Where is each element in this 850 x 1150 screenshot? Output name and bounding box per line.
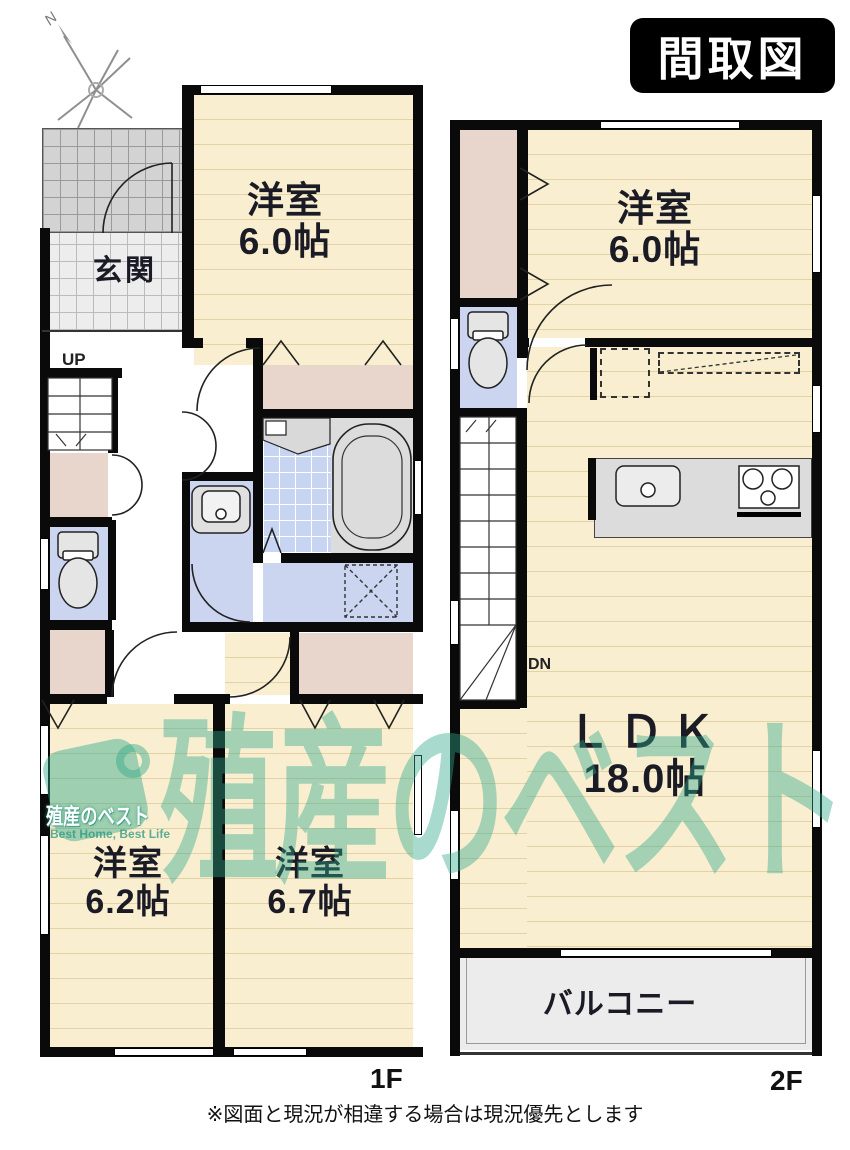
room-size: 6.0帖 [580, 229, 730, 270]
floorplan-title-badge: 間取図 [630, 18, 835, 93]
compass-north-label: N [41, 9, 61, 29]
room-label-6-7: 洋室 6.7帖 [235, 845, 385, 921]
room-name: 洋室 [580, 188, 730, 229]
disclaimer-text: ※図面と現況が相違する場合は現況優先とします [0, 1098, 850, 1127]
room-name: 洋室 [235, 845, 385, 883]
room-size: 6.7帖 [235, 883, 385, 921]
toilet-icon-1f [58, 532, 98, 608]
floor-2-tag: 2F [770, 1065, 803, 1097]
balcony-label: バルコニー [520, 988, 720, 1022]
stairs-1f [48, 378, 112, 450]
plan-symbols-layer: N [0, 0, 850, 1150]
floorplan-canvas: N 間取図 玄関 UP 洋室 6.0帖 洋室 6.2帖 洋室 6.7帖 洋室 6… [0, 0, 850, 1150]
room-name: ＬＤＫ [520, 708, 770, 757]
stove-icon [737, 466, 801, 517]
washbasin-icon [192, 486, 250, 533]
door-arcs-2f [527, 285, 612, 403]
page-title: 間取図 [658, 23, 808, 89]
stairs-up-label: UP [62, 350, 86, 370]
stairs-dn-label: DN [528, 656, 551, 674]
washer-space [345, 565, 397, 617]
room-label-6-2: 洋室 6.2帖 [53, 845, 203, 921]
kitchen-sink-icon [616, 466, 680, 506]
stairs-2f [460, 417, 516, 700]
room-size: 6.0帖 [210, 221, 360, 262]
floor-1-tag: 1F [370, 1063, 403, 1095]
room-label-ldk: ＬＤＫ 18.0帖 [520, 708, 770, 802]
room-label-6-0-1f: 洋室 6.0帖 [210, 180, 360, 263]
room-size: 6.2帖 [53, 883, 203, 921]
room-name: 洋室 [210, 180, 360, 221]
room-size: 18.0帖 [520, 757, 770, 802]
room-name: 洋室 [53, 845, 203, 883]
genkan-label: 玄関 [70, 255, 180, 287]
closet-door-symbols-2f [520, 168, 548, 300]
bathtub-icon [263, 418, 411, 550]
room-label-6-0-2f: 洋室 6.0帖 [580, 188, 730, 271]
toilet-icon-2f [468, 312, 508, 388]
cupboard-diagonal [660, 355, 796, 372]
compass-icon [58, 24, 132, 128]
